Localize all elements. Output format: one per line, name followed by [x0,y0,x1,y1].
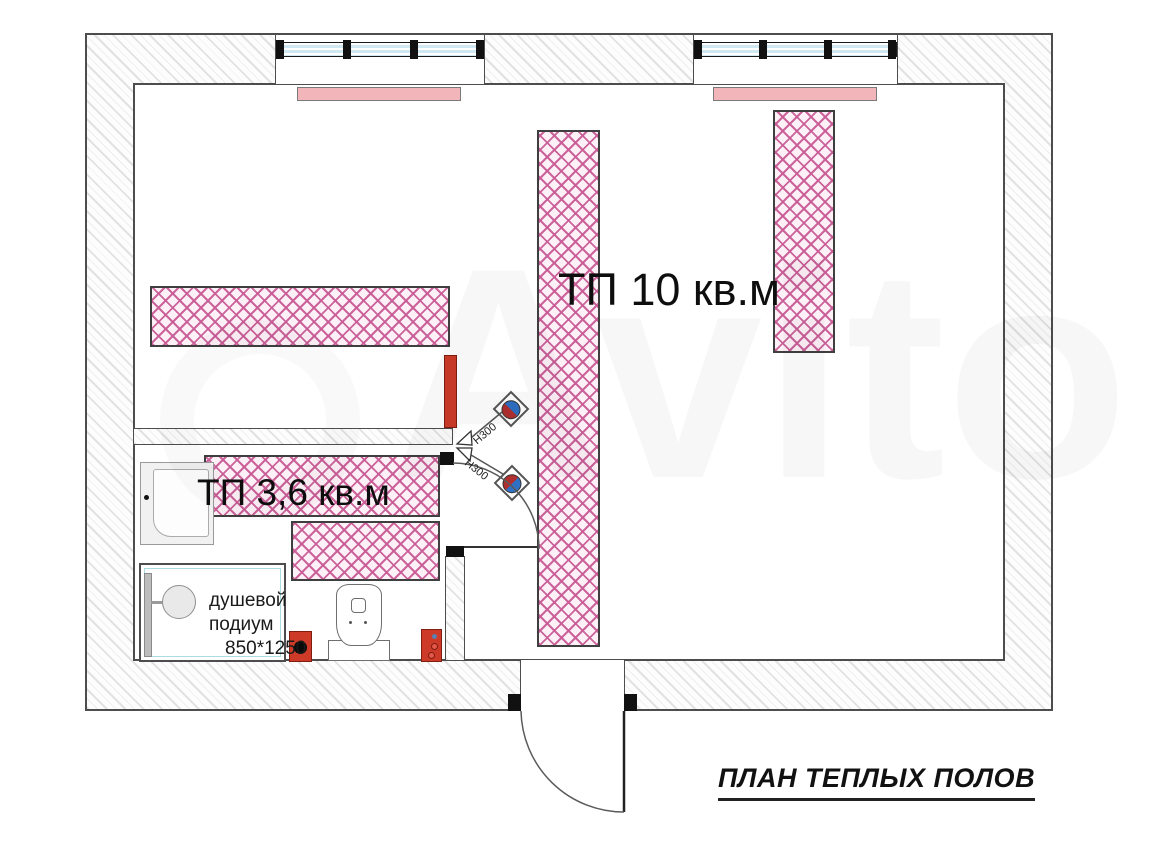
shower-label-line1: душевой [209,589,306,613]
entry-door-swing-arc [521,711,624,812]
shower-label-line2: подиум [209,613,306,637]
zone-label-bathroom: ТП 3,6 кв.м [197,472,390,514]
bathroom-door-swing-arc [453,463,539,549]
sensor-arrowhead-icon [457,431,472,445]
zone-label-main: ТП 10 кв.м [558,264,780,316]
shower-label-line3: 850*1250 [225,637,306,661]
shower-label: душевой подиум 850*1250 [209,589,306,661]
floor-plan-canvas: ТП 10 кв.м ТП 3,6 кв.м душевой подиум 85… [0,0,1170,866]
plan-title: ПЛАН ТЕПЛЫХ ПОЛОВ [718,763,1035,801]
linework-overlay [0,0,1170,866]
